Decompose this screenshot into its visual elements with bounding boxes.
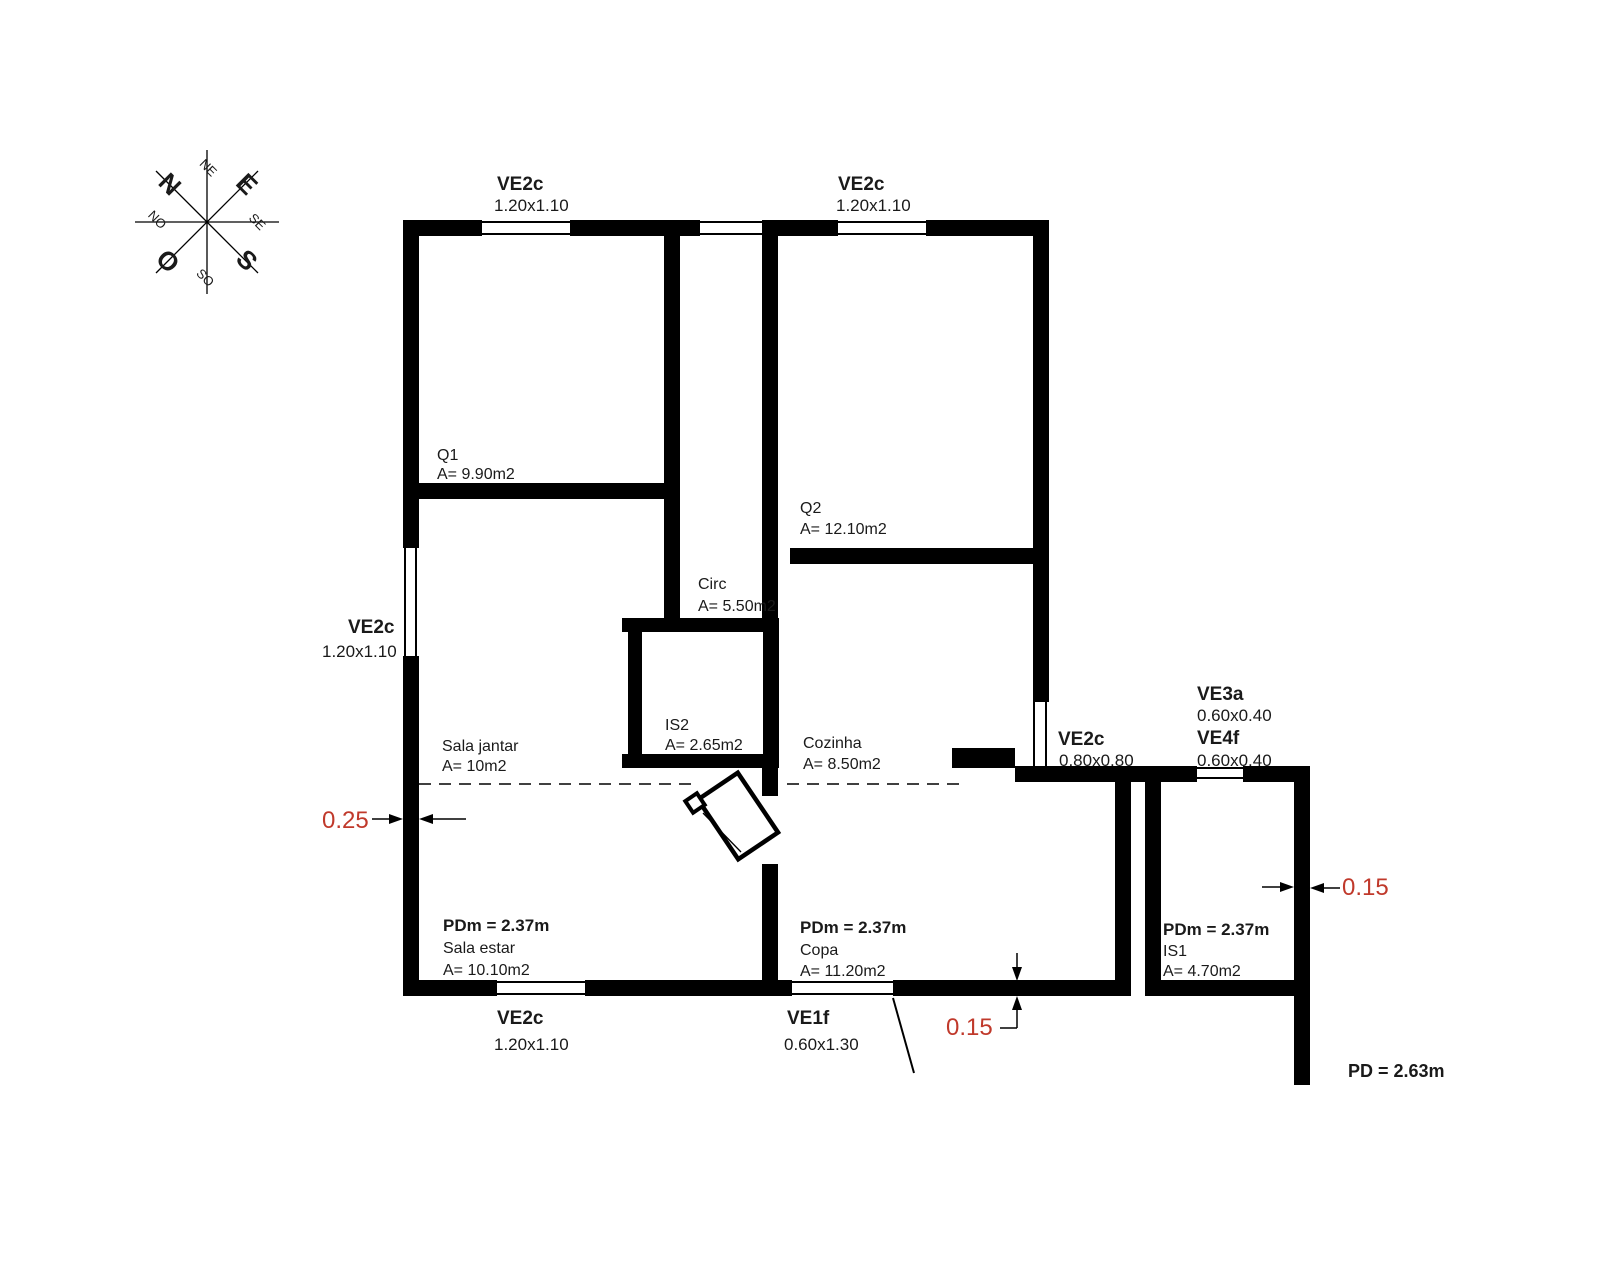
door-ve1f-size: 0.60x1.30 bbox=[784, 1035, 859, 1054]
dimension-right-wall-value: 0.15 bbox=[1342, 874, 1389, 901]
window-ve2c-top2-size: 1.20x1.10 bbox=[836, 196, 911, 215]
room-q1-area: A= 9.90m2 bbox=[437, 466, 515, 483]
room-sala-jantar-area: A= 10m2 bbox=[442, 758, 507, 775]
window-ve2c-right-size: 0.80x0.80 bbox=[1059, 751, 1134, 770]
annex-walls bbox=[952, 748, 1310, 1085]
window-ve2c-top2-code: VE2c bbox=[838, 174, 885, 195]
room-q1-name: Q1 bbox=[437, 447, 458, 464]
door-ve1f-code: VE1f bbox=[787, 1008, 830, 1029]
window-ve2c-right-code: VE2c bbox=[1058, 729, 1105, 750]
window-ve2c-left-code: VE2c bbox=[348, 617, 395, 638]
room-is1-name: IS1 bbox=[1163, 943, 1187, 960]
dimension-left-wall: 0.25 bbox=[322, 807, 466, 834]
compass-south-label: S bbox=[230, 243, 263, 276]
window-ve2c-top1-code: VE2c bbox=[497, 174, 544, 195]
compass-ne-label: NE bbox=[197, 156, 221, 180]
compass-so-label: SO bbox=[193, 266, 217, 290]
dimension-bottom-wall: 0.15 bbox=[946, 953, 1022, 1041]
room-cozinha-name: Cozinha bbox=[803, 735, 862, 752]
compass-rose-icon: N E S O NE SE SO NO bbox=[135, 150, 279, 294]
floor-plan-drawing: N E S O NE SE SO NO bbox=[0, 0, 1600, 1280]
room-sala-jantar-name: Sala jantar bbox=[442, 738, 519, 755]
room-sala-estar-area: A= 10.10m2 bbox=[443, 962, 530, 979]
window-ve4f-code: VE4f bbox=[1197, 728, 1240, 749]
compass-no-label: NO bbox=[145, 207, 169, 231]
dimension-left-wall-value: 0.25 bbox=[322, 807, 369, 834]
compass-se-label: SE bbox=[246, 210, 269, 233]
room-is1-area: A= 4.70m2 bbox=[1163, 963, 1241, 980]
window-ve3a-code: VE3a bbox=[1197, 684, 1244, 705]
compass-north-label: N bbox=[153, 167, 187, 201]
entry-door-swing bbox=[893, 998, 914, 1073]
room-circ-name: Circ bbox=[698, 576, 726, 593]
room-labels: Q1 A= 9.90m2 Q2 A= 12.10m2 Circ A= 5.50m… bbox=[437, 447, 1269, 980]
window-ve2c-bottom-code: VE2c bbox=[497, 1008, 544, 1029]
window-ve3a-size: 0.60x0.40 bbox=[1197, 706, 1272, 725]
room-q2-name: Q2 bbox=[800, 500, 821, 517]
room-is2-area: A= 2.65m2 bbox=[665, 737, 743, 754]
room-sala-estar-ceiling: PDm = 2.37m bbox=[443, 916, 549, 935]
dimension-bottom-wall-value: 0.15 bbox=[946, 1014, 993, 1041]
room-copa-name: Copa bbox=[800, 942, 838, 959]
window-ve2c-left-size: 1.20x1.10 bbox=[322, 642, 397, 661]
floor-plan-page: N E S O NE SE SO NO bbox=[0, 0, 1600, 1280]
room-cozinha-area: A= 8.50m2 bbox=[803, 756, 881, 773]
room-q2-area: A= 12.10m2 bbox=[800, 521, 887, 538]
room-copa-area: A= 11.20m2 bbox=[800, 963, 886, 980]
dimension-right-wall: 0.15 bbox=[1262, 874, 1389, 901]
compass-east-label: E bbox=[230, 167, 263, 200]
room-is2-name: IS2 bbox=[665, 717, 689, 734]
exterior-ceiling-height-label: PD = 2.63m bbox=[1348, 1061, 1445, 1081]
room-sala-estar-name: Sala estar bbox=[443, 940, 516, 957]
room-copa-ceiling: PDm = 2.37m bbox=[800, 918, 906, 937]
window-ve2c-top1-size: 1.20x1.10 bbox=[494, 196, 569, 215]
room-is1-ceiling: PDm = 2.37m bbox=[1163, 920, 1269, 939]
window-ve4f-size: 0.60x0.40 bbox=[1197, 751, 1272, 770]
window-ve2c-bottom-size: 1.20x1.10 bbox=[494, 1035, 569, 1054]
room-circ-area: A= 5.50m2 bbox=[698, 598, 776, 615]
